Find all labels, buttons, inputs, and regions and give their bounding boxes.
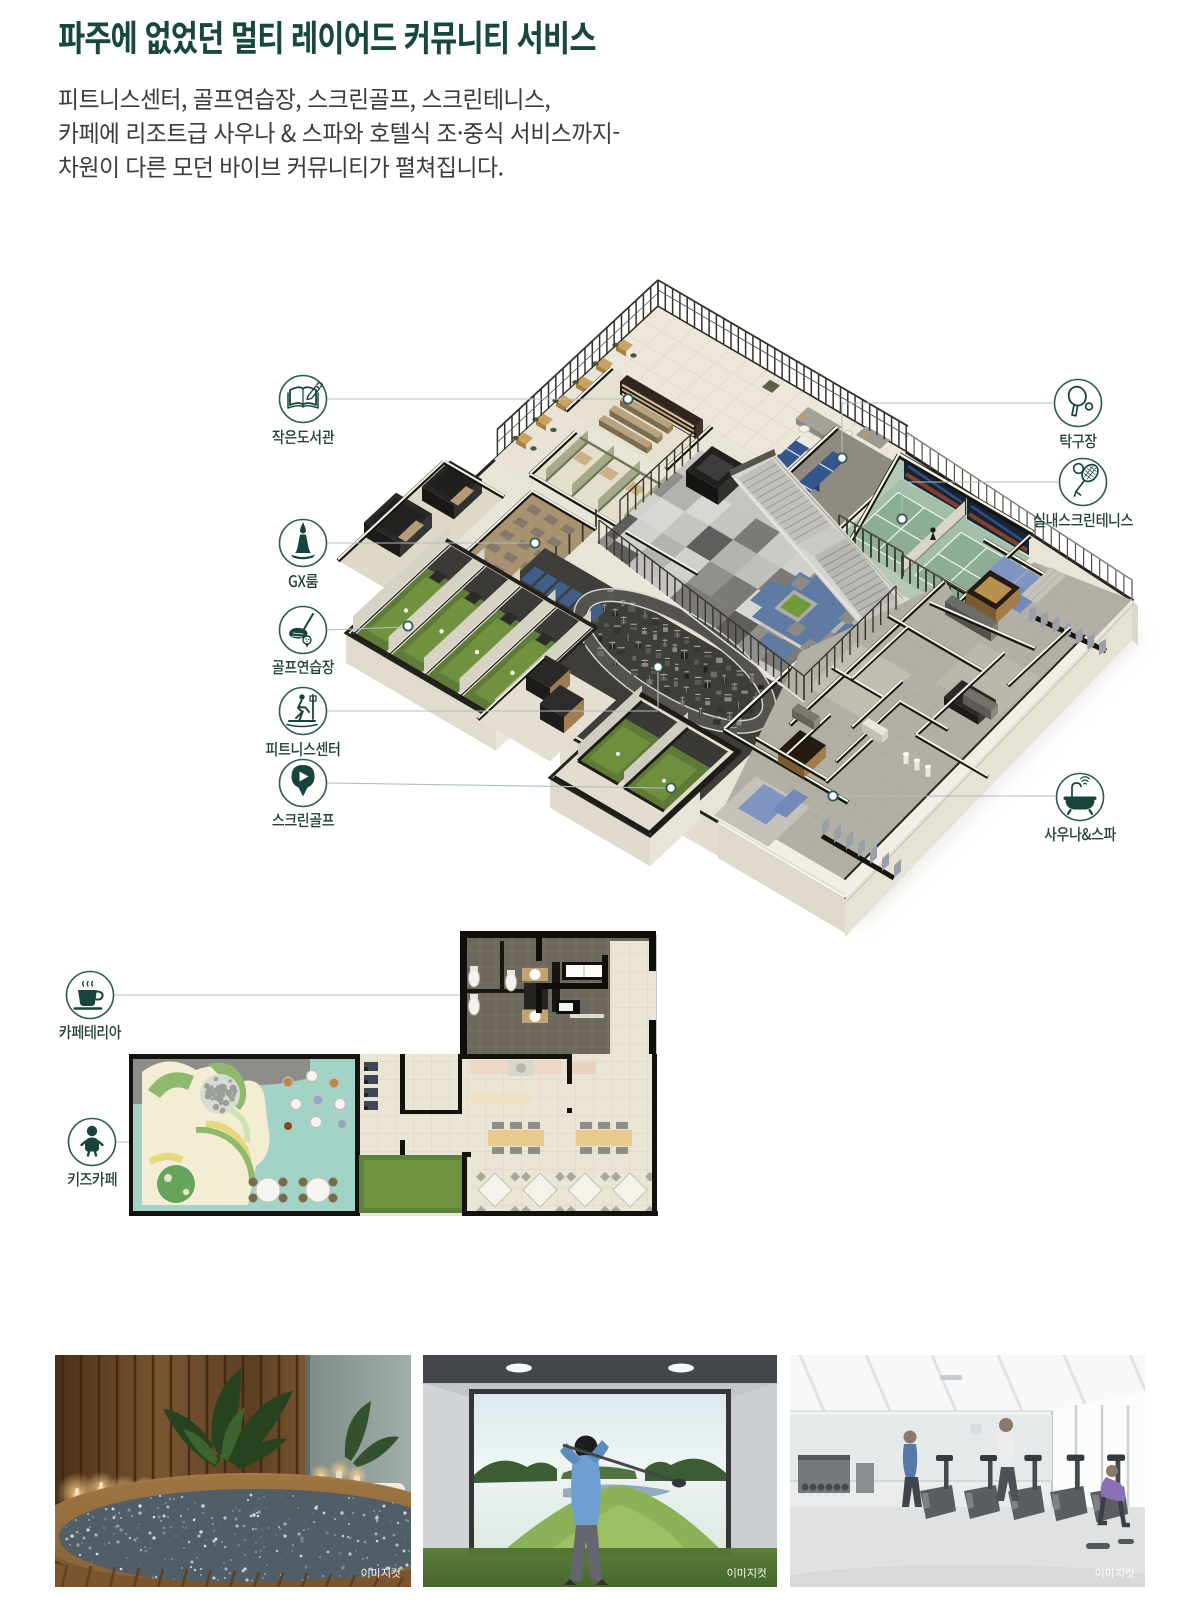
- svg-text:이미지컷: 이미지컷: [1095, 1565, 1135, 1581]
- svg-text:이미지컷: 이미지컷: [361, 1565, 401, 1581]
- svg-text:이미지컷: 이미지컷: [727, 1565, 767, 1581]
